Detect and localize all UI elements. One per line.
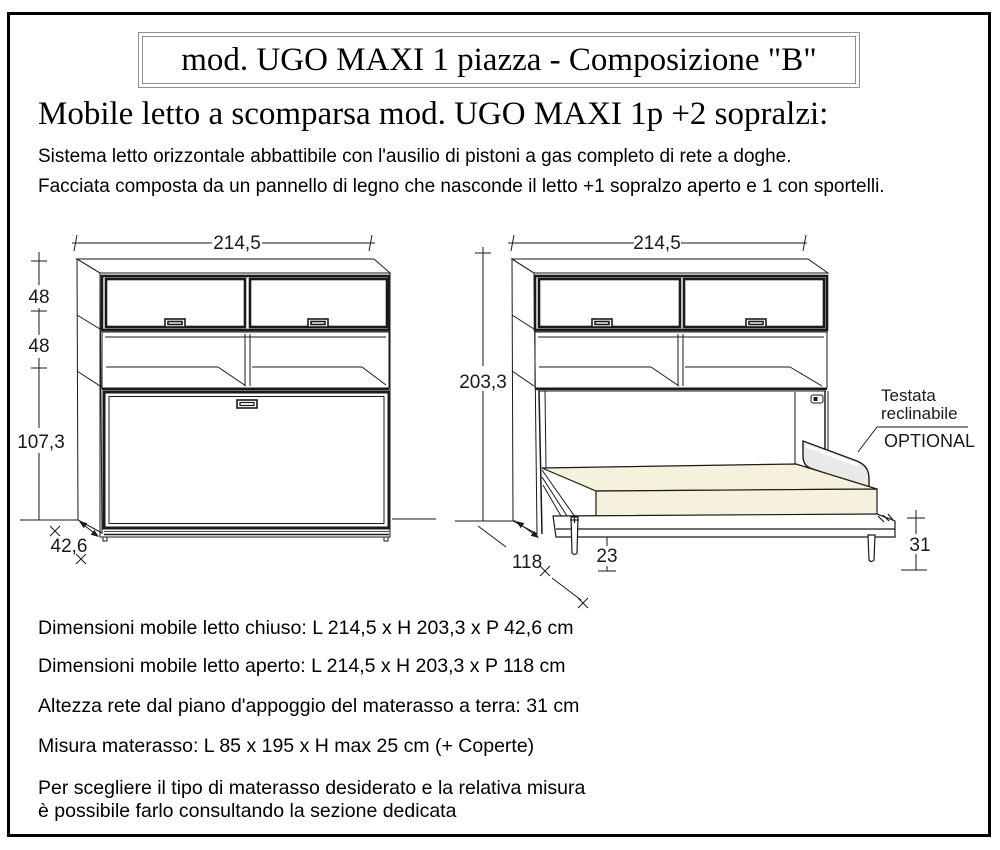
- leg-height-label: 23: [596, 546, 617, 567]
- closed-shelf-row: [102, 332, 389, 389]
- open-shelf-row: [535, 332, 827, 389]
- closed-height-dimension: [20, 252, 436, 520]
- headboard-label-line2: reclinabile: [881, 404, 958, 423]
- spec-line-mattress-note-2: è possibile farlo consultando la sezione…: [38, 800, 838, 823]
- spec-line-open-dimensions: Dimensioni mobile letto aperto: L 214,5 …: [38, 655, 838, 678]
- open-width-label: 214,5: [633, 233, 681, 254]
- closed-top-face: [77, 259, 390, 273]
- open-door-row: [535, 276, 827, 330]
- closed-middle-height-label: 48: [28, 336, 49, 357]
- spec-line-mattress-note-1: Per scegliere il tipo di materasso desid…: [38, 777, 838, 800]
- spec-line-mattress-size: Misura materasso: L 85 x 195 x H max 25 …: [38, 735, 838, 758]
- open-height-label: 203,3: [459, 372, 507, 393]
- closed-unit-drawing: [20, 235, 436, 564]
- closed-top-height-label: 48: [28, 287, 49, 308]
- closed-door-row: [102, 276, 389, 330]
- spec-line-closed-dimensions: Dimensioni mobile letto chiuso: L 214,5 …: [38, 617, 838, 640]
- headboard-label-line1: Testata: [881, 386, 936, 405]
- bed-height-label: 31: [909, 535, 930, 556]
- closed-bed-panel: [103, 392, 389, 541]
- closed-width-label: 214,5: [213, 233, 261, 254]
- spec-line-bed-height: Altezza rete dal piano d'appoggio del ma…: [38, 695, 838, 718]
- open-depth-label: 118: [512, 552, 542, 573]
- closed-depth-label: 42,6: [51, 536, 88, 557]
- closed-side-panel: [77, 259, 102, 533]
- technical-drawings: 214,5 48 48 107,3 42,6: [0, 0, 1000, 850]
- closed-bottom-height-label: 107,3: [17, 432, 65, 453]
- open-top-face: [512, 259, 828, 273]
- headboard-optional-label: OPTIONAL: [884, 431, 975, 451]
- open-side-panel: [512, 259, 537, 534]
- front-leg-right: [868, 535, 875, 562]
